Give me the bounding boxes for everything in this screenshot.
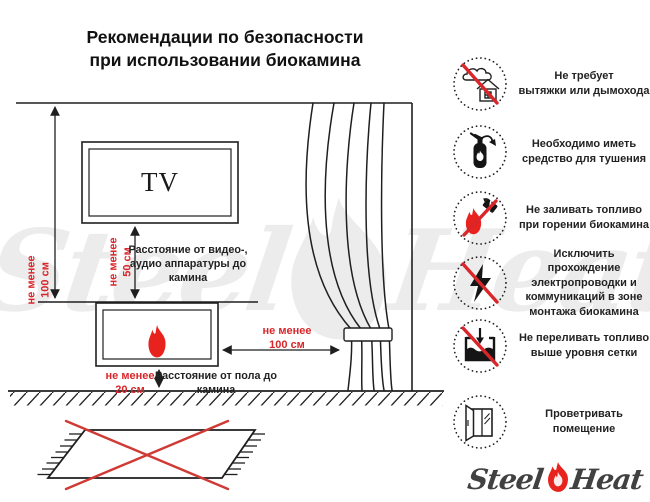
note-tv-distance: Расстояние от видео-, аудио аппаратуры д… <box>124 243 252 285</box>
rule-row-no-refuel: Не заливать топливо при горении биокамин… <box>452 183 650 253</box>
no-overfill-icon <box>452 318 508 374</box>
rule-row-no-wiring: Исключить прохождение электропроводки и … <box>452 248 650 318</box>
rule-text: Проветривать помещение <box>518 407 650 436</box>
dim-label-curtain-100: не менее 100 см <box>246 324 328 353</box>
note-floor-distance: Расстояние от пола до камина <box>154 369 278 397</box>
logo-flame-icon <box>546 462 570 493</box>
rule-text: Не переливать топливо выше уровня сетки <box>518 331 650 360</box>
logo-heat-text: Heat <box>568 463 644 496</box>
rule-row-ventilate: Проветривать помещение <box>452 387 650 457</box>
rule-row-no-overfill: Не переливать топливо выше уровня сетки <box>452 311 650 381</box>
infographic-page: Steel Heat Рекомендации по безопасности … <box>0 0 650 502</box>
rule-text: Не требует вытяжки или дымохода <box>518 69 650 98</box>
rule-row-extinguisher: Необходимо иметь средство для тушения <box>452 117 650 187</box>
logo-steel-text: Steel <box>466 463 545 496</box>
extinguisher-icon <box>452 124 508 180</box>
rule-text: Не заливать топливо при горении биокамин… <box>518 203 650 232</box>
rule-text: Исключить прохождение электропроводки и … <box>518 247 650 320</box>
rule-row-no-chimney: Не требует вытяжки или дымохода <box>452 49 650 119</box>
rule-text: Необходимо иметь средство для тушения <box>518 137 650 166</box>
steelheat-logo: Steel Heat <box>468 462 642 497</box>
no-refuel-icon <box>452 190 508 246</box>
no-chimney-icon <box>452 56 508 112</box>
open-window-glyph <box>466 406 492 441</box>
page-title: Рекомендации по безопасности при использ… <box>20 26 430 73</box>
dim-label-wall-100: не менее 100 см <box>25 256 54 305</box>
tv-label: TV <box>82 142 238 223</box>
extinguisher-glyph <box>471 134 496 169</box>
curtain-tie <box>344 328 392 341</box>
ventilate-window-icon <box>452 394 508 450</box>
no-wiring-icon <box>452 255 508 311</box>
